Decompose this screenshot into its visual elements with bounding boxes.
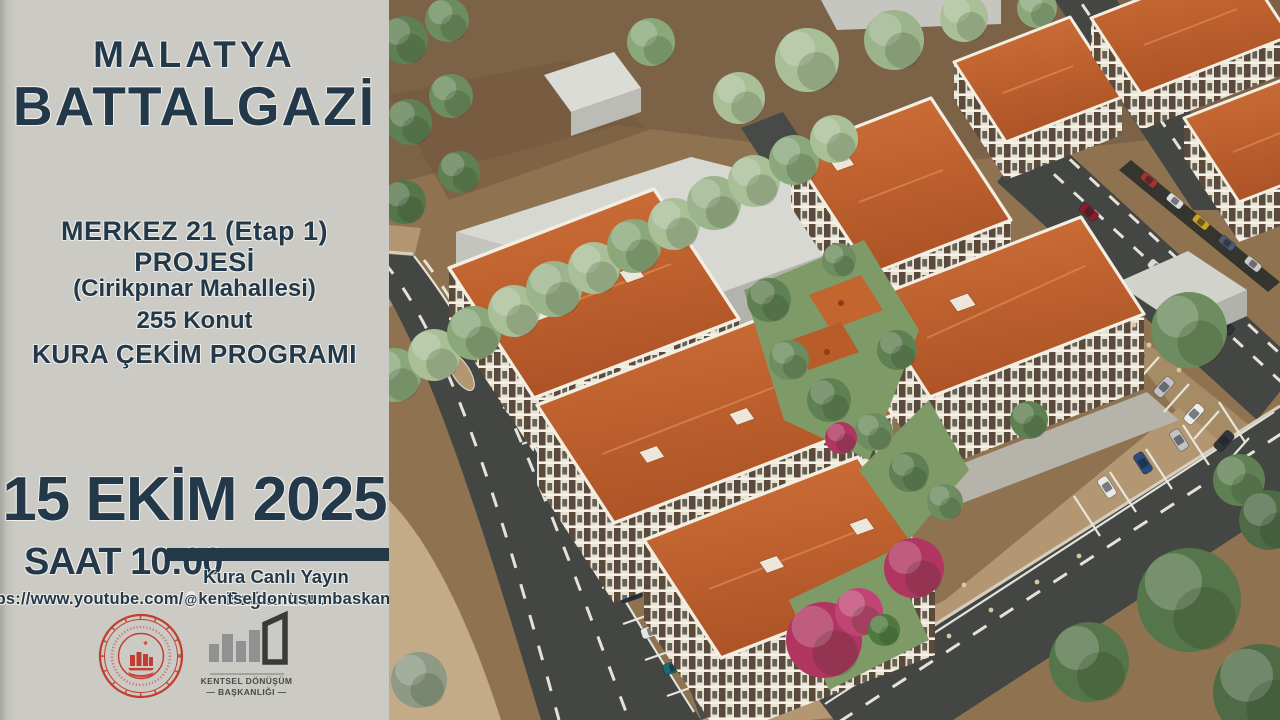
kentsel-logo-smallprint	[210, 673, 284, 675]
kentsel-logo-line2: — BAŞKANLIĞI —	[201, 687, 293, 698]
accent-bar	[167, 548, 389, 561]
event-date: 15 EKİM 2025	[0, 464, 389, 535]
youtube-link[interactable]: https://www.youtube.com/@kentseldonusumb…	[0, 590, 389, 609]
kentsel-logo-line1: KENTSEL DÖNÜŞÜM	[201, 676, 293, 687]
info-panel: MALATYA BATTALGAZİ MERKEZ 21 (Etap 1) PR…	[0, 0, 390, 720]
kentsel-logo-icon	[201, 608, 293, 666]
youtube-url-prefix: https://www.youtube.com/	[0, 590, 184, 609]
district-title: BATTALGAZİ	[0, 74, 389, 138]
poster: MALATYA BATTALGAZİ MERKEZ 21 (Etap 1) PR…	[0, 0, 1280, 720]
logo-row: KENTSEL DÖNÜŞÜM — BAŞKANLIĞI —	[0, 608, 389, 704]
youtube-handle: kentseldonusumbaskanligi	[198, 590, 415, 609]
program-label: KURA ÇEKİM PROGRAMI	[0, 339, 389, 370]
unit-count-label: 255 Konut	[0, 307, 389, 335]
project-title: MERKEZ 21 (Etap 1) PROJESİ	[0, 216, 389, 278]
project-render	[389, 0, 1280, 720]
at-icon: @	[185, 591, 198, 608]
neighborhood-label: (Cirikpınar Mahallesi)	[0, 275, 389, 303]
kentsel-logo: KENTSEL DÖNÜŞÜM — BAŞKANLIĞI —	[201, 608, 293, 698]
ministry-seal-icon	[97, 608, 185, 704]
city-title: MALATYA	[0, 34, 389, 76]
